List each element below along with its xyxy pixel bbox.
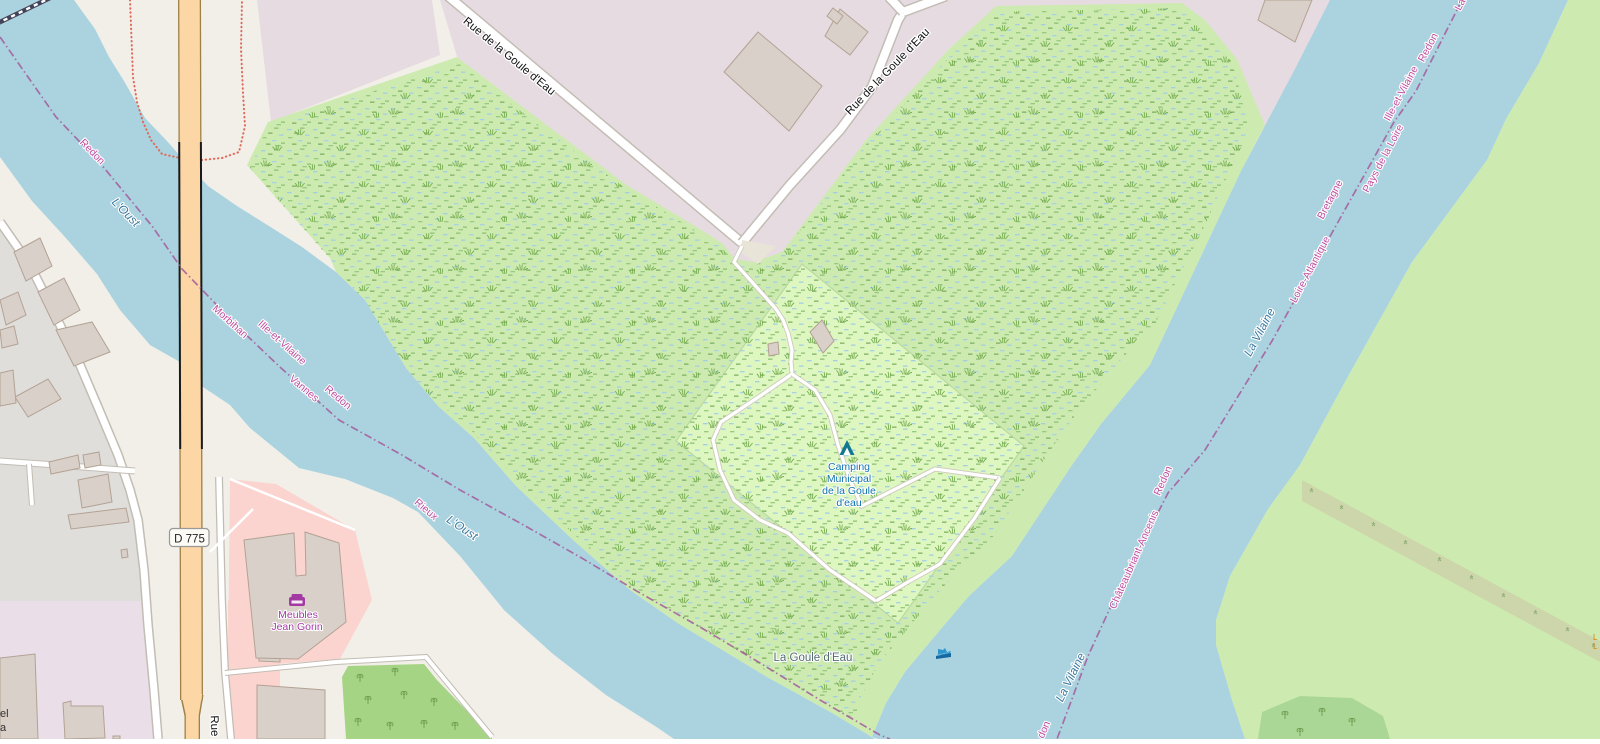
svg-text:Rue: Rue (208, 715, 221, 737)
svg-text:Jean Gorin: Jean Gorin (271, 621, 323, 633)
svg-text:Camping: Camping (828, 461, 870, 473)
svg-text:a: a (0, 722, 7, 734)
svg-text:Municipal: Municipal (827, 473, 871, 485)
svg-text:Meubles: Meubles (278, 609, 318, 621)
svg-text:d'eau: d'eau (836, 497, 862, 509)
svg-text:L: L (1593, 633, 1598, 642)
svg-text:de la Goule: de la Goule (822, 485, 876, 497)
svg-text:L: L (1593, 642, 1598, 651)
svg-text:el: el (0, 708, 9, 720)
svg-text:La Goule d'Eau: La Goule d'Eau (774, 652, 853, 664)
svg-text:D 775: D 775 (174, 534, 205, 546)
